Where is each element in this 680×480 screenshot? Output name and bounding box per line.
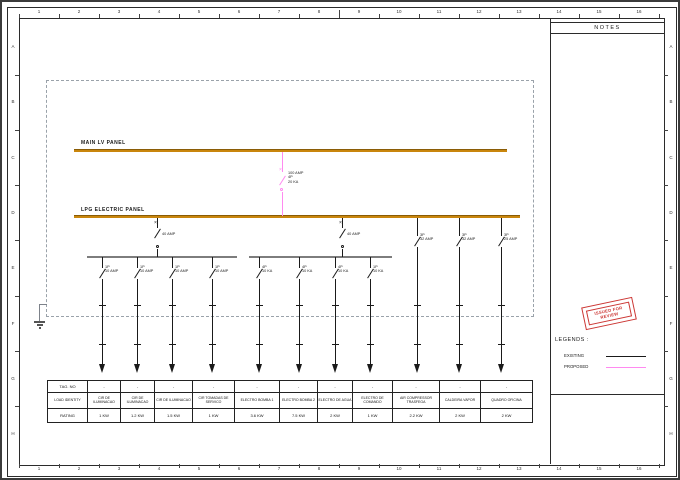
ruler-tick: [139, 464, 140, 468]
load-cell-identity: CIR DE ILUMINACAO: [155, 393, 193, 409]
ruler-letter-left: A: [9, 44, 17, 49]
load-cell-rating: 1 KW: [353, 409, 393, 423]
branch-rating: 10 AMP: [140, 269, 153, 273]
load-arrow-icon: [256, 364, 262, 373]
ruler-tick: [179, 14, 180, 18]
crossing-tick: [332, 305, 339, 306]
branch-line: [417, 218, 418, 236]
load-cell-rating: 1 KW: [193, 409, 235, 423]
incomer-ka: 20 KA: [288, 180, 303, 184]
ruler-number-bottom: 3: [113, 466, 125, 471]
feed-contact-x-icon: ×: [154, 220, 157, 226]
crossing-tick: [498, 305, 505, 306]
incomer-contact-o-icon: [280, 188, 283, 191]
ruler-tick: [379, 14, 380, 18]
branch-line: [501, 218, 502, 236]
branch-rating: 10 KA: [373, 269, 383, 273]
load-cell-identity: ELECTRO BOMBA 2: [280, 393, 318, 409]
ruler-number-top: 10: [393, 9, 405, 14]
lpg-bus: [74, 215, 520, 218]
branch-breaker-label: 3P32 AMP: [420, 233, 433, 242]
branch-rating: 10 KA: [302, 269, 312, 273]
crossing-tick: [332, 344, 339, 345]
notes-divider: [551, 394, 664, 395]
crossing-tick: [169, 305, 176, 306]
branch-breaker-label: 4P10 KA: [338, 265, 348, 274]
crossing-tick: [456, 305, 463, 306]
ruler-letter-right: B: [667, 99, 675, 104]
earth-icon: [37, 324, 43, 326]
load-arrow-icon: [99, 364, 105, 373]
ruler-number-bottom: 9: [353, 466, 365, 471]
ruler-number-bottom: 5: [193, 466, 205, 471]
earth-stub-h: [39, 304, 47, 305]
ruler-tick: [539, 464, 540, 468]
ruler-tick: [619, 464, 620, 468]
load-cell-rating: 1.5 KW: [155, 409, 193, 423]
crossing-tick: [498, 344, 505, 345]
ruler-tick: [664, 130, 668, 131]
incomer-breaker-label: 100 AMP 4P 20 KA: [288, 171, 303, 184]
ruler-tick: [299, 14, 300, 18]
crossing-tick: [256, 305, 263, 306]
branch-breaker-label: 3P25 AMP: [504, 233, 517, 242]
branch-line: [335, 279, 336, 364]
ruler-number-top: 16: [633, 9, 645, 14]
branch-line: [370, 257, 371, 268]
branch-line: [259, 279, 260, 364]
ruler-letter-right: H: [667, 431, 675, 436]
load-cell-identity: CALDEIRA VAPOR: [440, 393, 481, 409]
ruler-number-top: 13: [513, 9, 525, 14]
ruler-number-top: 15: [593, 9, 605, 14]
load-cell-rating: 3.6 KW: [235, 409, 280, 423]
ruler-tick: [99, 14, 100, 18]
branch-breaker-label: 1P10 KA: [373, 265, 383, 274]
ruler-letter-left: G: [9, 376, 17, 381]
branch-line: [102, 279, 103, 364]
branch-line: [102, 257, 103, 268]
load-cell-tag: -: [121, 381, 155, 393]
ruler-tick: [339, 10, 340, 18]
feed-line: [157, 249, 158, 257]
branch-rating: 32 AMP: [420, 237, 433, 241]
lpg-panel-label: LPG ELECTRIC PANEL: [81, 207, 145, 213]
table-row: LOAD IDENTITYCIR DE ILUMINACAOCIR DE ILU…: [48, 393, 533, 409]
earth-icon: [34, 321, 45, 323]
ruler-tick: [379, 464, 380, 468]
load-cell-tag: -: [280, 381, 318, 393]
crossing-tick: [134, 305, 141, 306]
load-cell-tag: -: [193, 381, 235, 393]
branch-breaker-label: 1P10 AMP: [175, 265, 188, 274]
ruler-number-bottom: 8: [313, 466, 325, 471]
legends-title: LEGENDS :: [555, 337, 589, 343]
branch-rating: 10 AMP: [175, 269, 188, 273]
crossing-tick: [99, 305, 106, 306]
ruler-tick: [15, 240, 19, 241]
branch-rating: 10 KA: [262, 269, 272, 273]
earth-icon: [39, 327, 41, 329]
load-arrow-icon: [296, 364, 302, 373]
crossing-tick: [367, 344, 374, 345]
crossing-tick: [256, 344, 263, 345]
branch-line: [335, 257, 336, 268]
branch-line: [212, 257, 213, 268]
crossing-tick: [296, 305, 303, 306]
load-cell-tag: -: [440, 381, 481, 393]
ruler-number-bottom: 6: [233, 466, 245, 471]
ruler-tick: [499, 464, 500, 468]
battery-limit-boundary: [46, 80, 534, 317]
ruler-number-top: 1: [33, 9, 45, 14]
ruler-number-bottom: 10: [393, 466, 405, 471]
branch-line: [259, 257, 260, 268]
ruler-tick: [99, 464, 100, 468]
load-cell-tag: -: [155, 381, 193, 393]
ruler-tick: [659, 464, 660, 468]
main-lv-panel-label: MAIN LV PANEL: [81, 140, 126, 146]
load-cell-identity: CIR DE ILUMINACAO: [88, 393, 121, 409]
branch-rating: 10 AMP: [215, 269, 228, 273]
ruler-tick: [419, 14, 420, 18]
ruler-tick: [419, 464, 420, 468]
table-row: TAG. NO-----------: [48, 381, 533, 393]
ruler-number-top: 5: [193, 9, 205, 14]
load-cell-identity: ELECTRO BOMBA 1: [235, 393, 280, 409]
feed-line: [157, 218, 158, 228]
ruler-number-top: 2: [73, 9, 85, 14]
load-cell-identity: CIR DE ILUMINACAO: [121, 393, 155, 409]
legend-proposed-line: [606, 367, 646, 368]
feed-contact-o-icon: [341, 245, 344, 248]
ruler-letter-right: G: [667, 376, 675, 381]
branch-rating: 32 AMP: [462, 237, 475, 241]
ruler-letter-right: A: [667, 44, 675, 49]
load-cell-rating: 2 KW: [318, 409, 353, 423]
load-cell-tag: -: [481, 381, 533, 393]
branch-line: [370, 279, 371, 364]
branch-breaker-label: 4P10 KA: [302, 265, 312, 274]
ruler-number-bottom: 7: [273, 466, 285, 471]
branch-breaker-label: 1P10 AMP: [105, 265, 118, 274]
load-arrow-icon: [414, 364, 420, 373]
branch-line: [459, 218, 460, 236]
load-cell-rating: 2 KW: [440, 409, 481, 423]
load-arrow-icon: [169, 364, 175, 373]
load-cell-rating: 7.5 KW: [280, 409, 318, 423]
load-cell-tag: -: [393, 381, 440, 393]
ruler-number-top: 3: [113, 9, 125, 14]
load-cell-rating: 1.2 KW: [121, 409, 155, 423]
table-row: RATING1 KW1.2 KW1.5 KW1 KW3.6 KW7.5 KW2 …: [48, 409, 533, 423]
main-lv-bus: [74, 149, 507, 152]
ruler-tick: [539, 14, 540, 18]
ruler-tick: [139, 14, 140, 18]
ruler-tick: [15, 130, 19, 131]
feed-line: [342, 218, 343, 228]
load-arrow-icon: [134, 364, 140, 373]
ruler-tick: [15, 296, 19, 297]
load-cell-identity: AIR COMPRESSOR TRASFEGA: [393, 393, 440, 409]
incomer-contact-x-icon: ×: [279, 167, 282, 173]
load-cell-tag: -: [88, 381, 121, 393]
load-arrow-icon: [332, 364, 338, 373]
ruler-number-bottom: 12: [473, 466, 485, 471]
ruler-number-top: 8: [313, 9, 325, 14]
feed-breaker-label: 40 AMP: [162, 232, 175, 236]
ruler-number-bottom: 16: [633, 466, 645, 471]
drawing-sheet: 1234567891011121314151612345678910111213…: [0, 0, 680, 480]
load-arrow-icon: [367, 364, 373, 373]
load-cell-identity: ELECTRO DE AGUA: [318, 393, 353, 409]
earth-stub-v: [39, 304, 40, 321]
sub-bus: [87, 256, 237, 258]
crossing-tick: [367, 305, 374, 306]
feed-line: [342, 249, 343, 257]
ruler-tick: [15, 75, 19, 76]
ruler-tick: [579, 464, 580, 468]
ruler-number-bottom: 13: [513, 466, 525, 471]
ruler-number-top: 9: [353, 9, 365, 14]
crossing-tick: [414, 305, 421, 306]
ruler-tick: [459, 464, 460, 468]
ruler-tick: [219, 14, 220, 18]
crossing-tick: [414, 344, 421, 345]
feed-contact-x-icon: ×: [339, 220, 342, 226]
branch-line: [172, 257, 173, 268]
ruler-letter-right: F: [667, 321, 675, 326]
ruler-tick: [664, 351, 668, 352]
ruler-number-bottom: 1: [33, 466, 45, 471]
crossing-tick: [99, 344, 106, 345]
ruler-number-top: 4: [153, 9, 165, 14]
ruler-number-top: 6: [233, 9, 245, 14]
crossing-tick: [134, 344, 141, 345]
ruler-tick: [339, 464, 340, 468]
branch-line: [172, 279, 173, 364]
ruler-tick: [259, 464, 260, 468]
branch-line: [137, 257, 138, 268]
ruler-tick: [259, 14, 260, 18]
ruler-number-top: 11: [433, 9, 445, 14]
crossing-tick: [209, 305, 216, 306]
row-header: LOAD IDENTITY: [48, 393, 88, 409]
ruler-letter-left: D: [9, 210, 17, 215]
crossing-tick: [209, 344, 216, 345]
notes-panel: NOTES: [550, 18, 664, 464]
ruler-number-bottom: 14: [553, 466, 565, 471]
branch-rating: 10 AMP: [105, 269, 118, 273]
ruler-tick: [219, 464, 220, 468]
row-header: TAG. NO: [48, 381, 88, 393]
load-arrow-icon: [498, 364, 504, 373]
incomer-riser: [282, 152, 283, 172]
ruler-letter-right: C: [667, 155, 675, 160]
ruler-letter-left: H: [9, 431, 17, 436]
ruler-tick: [459, 14, 460, 18]
ruler-tick: [19, 464, 20, 468]
ruler-tick: [664, 240, 668, 241]
crossing-tick: [169, 344, 176, 345]
crossing-tick: [456, 344, 463, 345]
branch-rating: 10 KA: [338, 269, 348, 273]
ruler-number-bottom: 11: [433, 466, 445, 471]
load-cell-identity: ELECTRO DE COMANDO: [353, 393, 393, 409]
ruler-number-bottom: 2: [73, 466, 85, 471]
ruler-tick: [15, 406, 19, 407]
ruler-letter-left: E: [9, 265, 17, 270]
incomer-riser: [282, 192, 283, 216]
legend-proposed-label: PROPOSED: [564, 364, 588, 369]
ruler-tick: [299, 464, 300, 468]
load-schedule-table: TAG. NO-----------LOAD IDENTITYCIR DE IL…: [47, 380, 533, 423]
ruler-tick: [19, 14, 20, 18]
load-cell-tag: -: [318, 381, 353, 393]
branch-breaker-label: 3P32 AMP: [462, 233, 475, 242]
load-cell-tag: -: [353, 381, 393, 393]
ruler-tick: [664, 185, 668, 186]
ruler-letter-left: F: [9, 321, 17, 326]
load-arrow-icon: [456, 364, 462, 373]
ruler-tick: [499, 14, 500, 18]
legend-existing-line: [606, 356, 646, 357]
notes-title: NOTES: [551, 22, 664, 34]
ruler-tick: [59, 14, 60, 18]
ruler-letter-right: E: [667, 265, 675, 270]
load-cell-rating: 2 KW: [481, 409, 533, 423]
ruler-tick: [664, 296, 668, 297]
load-cell-identity: CIR TOMADAS DE SERVICO: [193, 393, 235, 409]
branch-breaker-label: 1P10 AMP: [215, 265, 228, 274]
ruler-tick: [664, 406, 668, 407]
ruler-number-bottom: 4: [153, 466, 165, 471]
branch-line: [299, 257, 300, 268]
ruler-number-top: 7: [273, 9, 285, 14]
load-cell-rating: 1 KW: [88, 409, 121, 423]
feed-contact-o-icon: [156, 245, 159, 248]
branch-line: [212, 279, 213, 364]
branch-line: [299, 279, 300, 364]
branch-breaker-label: 1P10 AMP: [140, 265, 153, 274]
row-header: RATING: [48, 409, 88, 423]
load-arrow-icon: [209, 364, 215, 373]
ruler-letter-left: B: [9, 99, 17, 104]
feed-breaker-label: 40 AMP: [347, 232, 360, 236]
legend-existing-label: EXISTING: [564, 353, 584, 358]
ruler-tick: [15, 351, 19, 352]
branch-breaker-label: 4P10 KA: [262, 265, 272, 274]
load-cell-tag: -: [235, 381, 280, 393]
ruler-tick: [664, 75, 668, 76]
ruler-number-top: 12: [473, 9, 485, 14]
ruler-tick: [59, 464, 60, 468]
ruler-letter-right: D: [667, 210, 675, 215]
ruler-number-top: 14: [553, 9, 565, 14]
ruler-tick: [15, 185, 19, 186]
load-cell-rating: 2.2 KW: [393, 409, 440, 423]
branch-rating: 25 AMP: [504, 237, 517, 241]
branch-line: [137, 279, 138, 364]
ruler-tick: [179, 464, 180, 468]
ruler-letter-left: C: [9, 155, 17, 160]
ruler-number-bottom: 15: [593, 466, 605, 471]
load-cell-identity: QUADRO OFICINA: [481, 393, 533, 409]
crossing-tick: [296, 344, 303, 345]
